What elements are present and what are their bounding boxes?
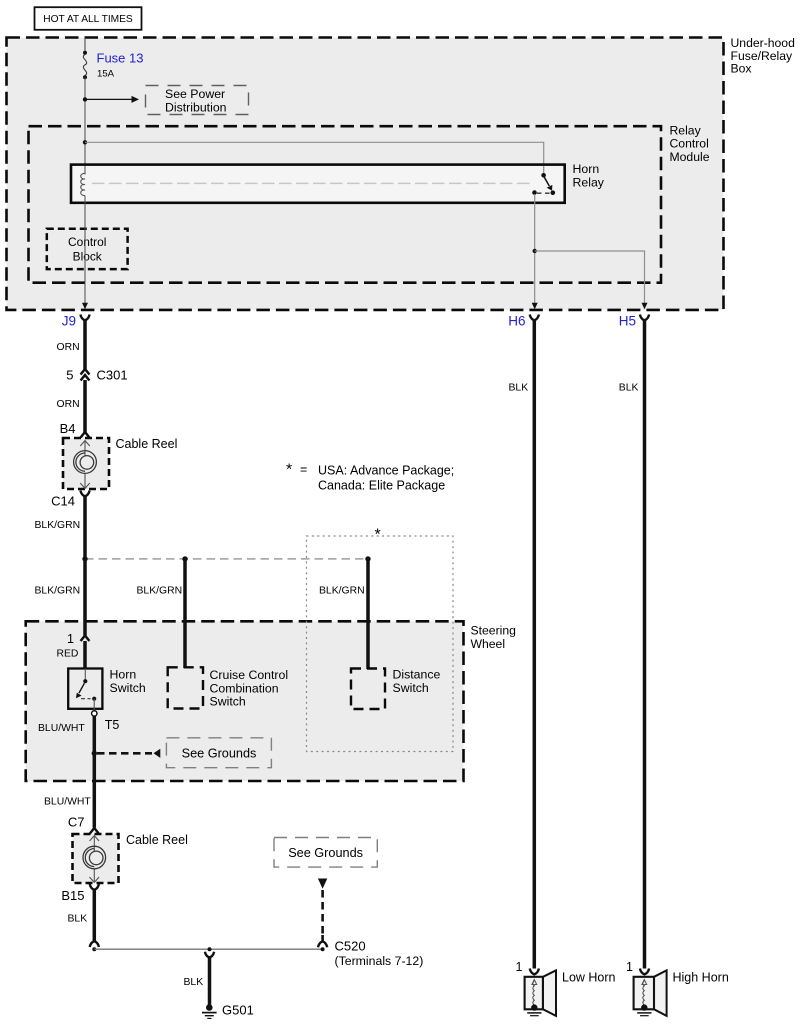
svg-text:T5: T5	[105, 718, 120, 732]
svg-text:Box: Box	[731, 62, 752, 76]
svg-text:1: 1	[67, 632, 74, 646]
svg-text:High Horn: High Horn	[673, 971, 729, 985]
svg-text:15A: 15A	[97, 69, 115, 80]
svg-text:B4: B4	[60, 421, 76, 436]
svg-text:H6: H6	[508, 314, 525, 329]
svg-text:ORN: ORN	[57, 399, 80, 410]
svg-text:Switch: Switch	[210, 695, 246, 709]
svg-text:1: 1	[516, 960, 523, 974]
svg-text:BLK/GRN: BLK/GRN	[35, 520, 81, 531]
svg-text:Cable Reel: Cable Reel	[116, 437, 178, 451]
svg-text:Steering: Steering	[471, 624, 516, 638]
svg-text:See Grounds: See Grounds	[182, 747, 257, 761]
svg-text:RED: RED	[57, 649, 79, 660]
svg-text:Horn: Horn	[573, 162, 600, 176]
svg-text:Fuse 13: Fuse 13	[97, 51, 144, 66]
svg-text:*: *	[375, 527, 381, 544]
svg-text:Horn: Horn	[110, 668, 137, 682]
svg-text:BLU/WHT: BLU/WHT	[44, 796, 91, 807]
svg-text:5: 5	[66, 368, 73, 383]
svg-text:C520: C520	[335, 939, 366, 954]
svg-text:1: 1	[626, 960, 633, 974]
svg-text:J9: J9	[62, 314, 76, 329]
svg-text:C7: C7	[68, 815, 85, 830]
svg-text:(Terminals 7-12): (Terminals 7-12)	[335, 954, 424, 968]
svg-text:Control: Control	[670, 137, 709, 151]
svg-text:BLK/GRN: BLK/GRN	[137, 586, 183, 597]
svg-text:BLK/GRN: BLK/GRN	[35, 586, 81, 597]
svg-text:Block: Block	[73, 249, 102, 263]
svg-text:Distance: Distance	[393, 668, 441, 682]
svg-text:=: =	[300, 463, 307, 477]
svg-text:ORN: ORN	[57, 342, 80, 353]
svg-text:Low Horn: Low Horn	[562, 971, 616, 985]
svg-text:Wheel: Wheel	[471, 637, 506, 651]
svg-text:Cruise Control: Cruise Control	[210, 668, 289, 682]
svg-text:Cable Reel: Cable Reel	[126, 833, 188, 847]
svg-text:BLK/GRN: BLK/GRN	[319, 586, 365, 597]
svg-text:Canada: Elite Package: Canada: Elite Package	[318, 479, 445, 493]
svg-text:B15: B15	[61, 888, 84, 903]
svg-text:H5: H5	[619, 314, 636, 329]
svg-text:C301: C301	[97, 368, 128, 383]
svg-text:BLU/WHT: BLU/WHT	[38, 723, 85, 734]
svg-text:BLK: BLK	[68, 914, 88, 925]
svg-text:Switch: Switch	[393, 681, 429, 695]
svg-text:Relay: Relay	[670, 123, 702, 137]
svg-text:Relay: Relay	[573, 175, 605, 189]
svg-text:G501: G501	[222, 1003, 254, 1018]
svg-text:BLK: BLK	[509, 383, 529, 394]
svg-text:See Grounds: See Grounds	[288, 846, 363, 860]
svg-text:Combination: Combination	[210, 681, 279, 695]
svg-text:USA: Advance Package;: USA: Advance Package;	[318, 464, 454, 478]
svg-text:Module: Module	[670, 150, 710, 164]
svg-text:Switch: Switch	[110, 681, 146, 695]
svg-text:HOT AT ALL TIMES: HOT AT ALL TIMES	[43, 14, 133, 25]
svg-text:BLK: BLK	[184, 977, 204, 988]
svg-text:See Power: See Power	[165, 87, 225, 101]
svg-text:C14: C14	[51, 494, 75, 509]
svg-text:*: *	[286, 462, 292, 479]
svg-text:Control: Control	[68, 235, 106, 249]
svg-text:BLK: BLK	[619, 383, 639, 394]
svg-text:Distribution: Distribution	[165, 101, 227, 115]
